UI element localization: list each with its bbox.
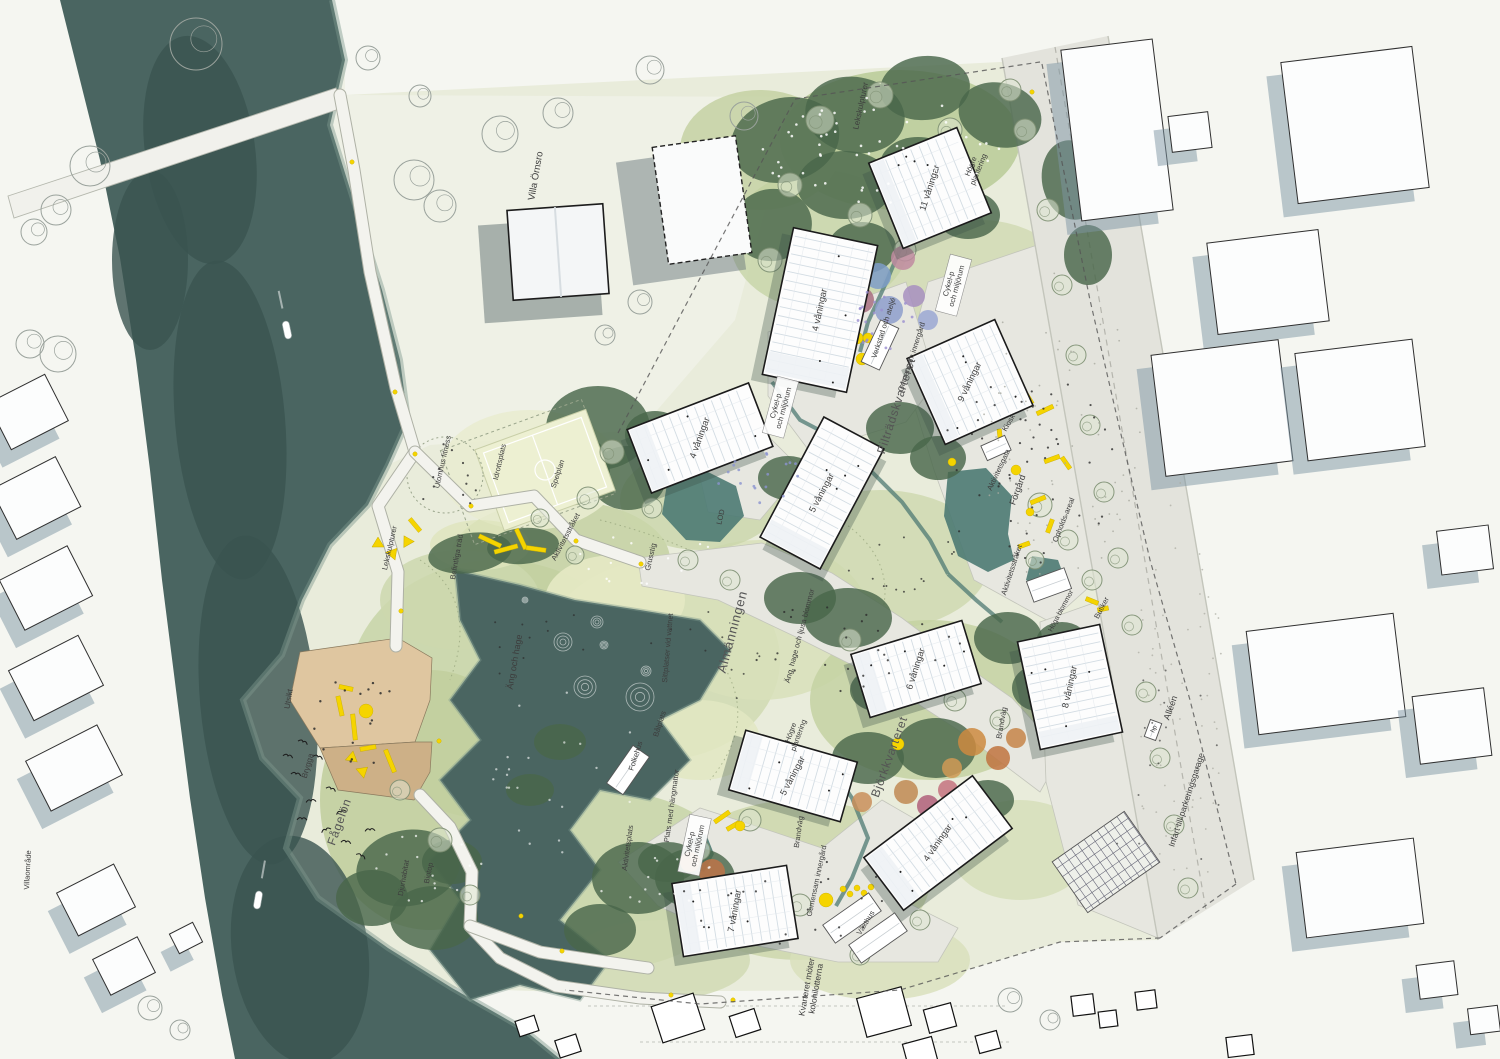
furniture-dot bbox=[669, 993, 673, 997]
speck bbox=[1025, 530, 1027, 532]
speck bbox=[1088, 461, 1090, 463]
speck bbox=[739, 482, 742, 485]
speck bbox=[995, 436, 997, 438]
speck bbox=[379, 692, 381, 694]
speck bbox=[843, 627, 845, 629]
speck bbox=[856, 154, 859, 157]
speck bbox=[945, 159, 948, 162]
speck bbox=[1059, 340, 1061, 342]
speck bbox=[1073, 351, 1075, 353]
building-roof bbox=[1151, 340, 1293, 477]
speck bbox=[945, 121, 948, 124]
speck bbox=[351, 758, 353, 760]
speck bbox=[1136, 408, 1138, 410]
speck bbox=[545, 621, 547, 623]
speck bbox=[521, 623, 523, 625]
context-building bbox=[1279, 339, 1427, 474]
speck bbox=[871, 332, 874, 335]
speck bbox=[451, 449, 453, 451]
speck bbox=[492, 778, 494, 780]
speck bbox=[1101, 516, 1103, 518]
speck bbox=[734, 460, 737, 463]
speck bbox=[1205, 828, 1207, 830]
furniture-dot bbox=[948, 458, 956, 466]
speck bbox=[875, 876, 877, 878]
speck bbox=[1089, 404, 1091, 406]
speck bbox=[857, 319, 860, 322]
speck bbox=[819, 154, 822, 157]
speck bbox=[605, 578, 607, 580]
speck bbox=[1160, 704, 1162, 706]
speck bbox=[468, 864, 470, 866]
allotment-cottage bbox=[1135, 990, 1157, 1010]
speck bbox=[826, 861, 828, 863]
speck bbox=[887, 182, 890, 185]
speck bbox=[953, 551, 955, 553]
speck bbox=[1077, 567, 1079, 569]
speck bbox=[703, 926, 705, 928]
speck bbox=[1212, 767, 1214, 769]
furniture-dot bbox=[413, 452, 417, 456]
speck bbox=[771, 172, 774, 175]
speck bbox=[762, 148, 765, 151]
flowering-tree bbox=[942, 758, 962, 778]
speck bbox=[785, 933, 787, 935]
speck bbox=[877, 649, 879, 651]
speck bbox=[676, 858, 678, 860]
speck bbox=[796, 475, 799, 478]
speck bbox=[1216, 744, 1218, 746]
speck bbox=[782, 495, 785, 498]
furniture-dot bbox=[840, 886, 846, 892]
speck bbox=[1031, 448, 1033, 450]
speck bbox=[1031, 390, 1033, 392]
speck bbox=[862, 341, 865, 344]
speck bbox=[764, 880, 766, 882]
speck bbox=[783, 611, 785, 613]
speck bbox=[415, 835, 417, 837]
speck bbox=[914, 170, 917, 173]
speck bbox=[998, 392, 1000, 394]
speck bbox=[1036, 514, 1038, 516]
speck bbox=[848, 570, 850, 572]
context-building bbox=[1265, 46, 1431, 217]
speck bbox=[1039, 424, 1041, 426]
speck bbox=[814, 929, 816, 931]
building-roof bbox=[1437, 525, 1494, 575]
speck bbox=[883, 654, 885, 656]
flowering-tree bbox=[894, 780, 918, 804]
speck bbox=[1040, 561, 1042, 563]
speck bbox=[558, 839, 560, 841]
speck bbox=[818, 143, 821, 146]
speck bbox=[1026, 571, 1028, 573]
speck bbox=[983, 413, 985, 415]
speck bbox=[1051, 480, 1053, 482]
speck bbox=[789, 461, 792, 464]
speck bbox=[1181, 682, 1183, 684]
speck bbox=[1118, 340, 1120, 342]
flowering-tree bbox=[958, 728, 986, 756]
speck bbox=[923, 580, 925, 582]
speck bbox=[1138, 843, 1140, 845]
speck bbox=[1008, 474, 1010, 476]
speck bbox=[516, 787, 518, 789]
speck bbox=[951, 553, 953, 555]
speck bbox=[506, 786, 508, 788]
furniture-dot bbox=[399, 609, 403, 613]
speck bbox=[1111, 448, 1113, 450]
speck bbox=[699, 889, 701, 891]
speck bbox=[1100, 324, 1102, 326]
speck bbox=[1207, 871, 1209, 873]
speck bbox=[1105, 496, 1107, 498]
speck bbox=[873, 312, 876, 315]
speck bbox=[658, 893, 660, 895]
furniture-dot bbox=[350, 160, 354, 164]
speck bbox=[1097, 498, 1099, 500]
speck bbox=[1141, 805, 1143, 807]
building-roof bbox=[1207, 230, 1329, 335]
speck bbox=[495, 768, 497, 770]
speck bbox=[1057, 443, 1059, 445]
speck bbox=[981, 437, 983, 439]
speck bbox=[948, 636, 950, 638]
speck bbox=[1121, 490, 1123, 492]
speck bbox=[1026, 461, 1028, 463]
furniture-dot bbox=[560, 949, 564, 953]
speck bbox=[1033, 539, 1035, 541]
speck bbox=[1052, 483, 1054, 485]
speck bbox=[989, 494, 991, 496]
speck bbox=[727, 471, 730, 474]
speck bbox=[985, 142, 988, 145]
speck bbox=[946, 429, 948, 431]
speck bbox=[1039, 385, 1041, 387]
speck bbox=[1010, 520, 1012, 522]
speck bbox=[522, 657, 524, 659]
speck bbox=[1094, 363, 1096, 365]
speck bbox=[1138, 794, 1140, 796]
speck bbox=[1218, 772, 1220, 774]
speck bbox=[1186, 867, 1188, 869]
speck bbox=[579, 743, 581, 745]
speck bbox=[824, 664, 826, 666]
speck bbox=[884, 347, 887, 350]
furniture-dot bbox=[639, 562, 643, 566]
speck bbox=[628, 801, 630, 803]
speck bbox=[881, 900, 883, 902]
speck bbox=[456, 889, 458, 891]
speck bbox=[707, 611, 709, 613]
speck bbox=[683, 890, 685, 892]
speck bbox=[1165, 835, 1167, 837]
speck bbox=[1179, 482, 1181, 484]
speck bbox=[776, 652, 778, 654]
speck bbox=[857, 200, 860, 203]
speck bbox=[965, 136, 968, 139]
speck bbox=[998, 147, 1001, 150]
furniture-dot bbox=[1026, 508, 1034, 516]
speck bbox=[375, 867, 377, 869]
speck bbox=[911, 316, 914, 319]
speck bbox=[421, 900, 423, 902]
speck bbox=[1025, 400, 1027, 402]
speck bbox=[866, 339, 869, 342]
speck bbox=[369, 722, 371, 724]
speck bbox=[935, 168, 938, 171]
speck bbox=[1078, 514, 1080, 516]
speck bbox=[1081, 414, 1083, 416]
building-roof bbox=[1168, 112, 1212, 153]
speck bbox=[878, 140, 881, 143]
building-roof bbox=[1296, 838, 1424, 938]
speck bbox=[367, 688, 369, 690]
furniture-dot bbox=[854, 885, 860, 891]
speck bbox=[1164, 785, 1166, 787]
speck bbox=[958, 530, 960, 532]
speck bbox=[465, 483, 467, 485]
speck bbox=[1052, 498, 1054, 500]
speck bbox=[997, 485, 999, 487]
speck bbox=[1019, 442, 1021, 444]
speck bbox=[977, 419, 979, 421]
speck bbox=[408, 899, 410, 901]
speck bbox=[1116, 513, 1118, 515]
speck bbox=[1155, 569, 1157, 571]
speck bbox=[344, 689, 346, 691]
speck bbox=[547, 630, 549, 632]
speck bbox=[802, 172, 805, 175]
speck bbox=[561, 806, 563, 808]
speck bbox=[1151, 722, 1153, 724]
speck bbox=[876, 189, 879, 192]
speck bbox=[1056, 404, 1058, 406]
speck bbox=[764, 486, 767, 489]
furniture-dot bbox=[1030, 90, 1034, 94]
speck bbox=[1047, 446, 1049, 448]
speck bbox=[758, 655, 760, 657]
speck bbox=[1201, 725, 1203, 727]
speck bbox=[885, 585, 887, 587]
speck bbox=[1155, 672, 1157, 674]
speck bbox=[845, 636, 847, 638]
speck bbox=[1170, 505, 1172, 507]
speck bbox=[1158, 689, 1160, 691]
speck bbox=[774, 658, 776, 660]
speck bbox=[959, 642, 961, 644]
building-roof bbox=[1416, 961, 1458, 999]
speck bbox=[862, 685, 864, 687]
speck bbox=[997, 439, 999, 441]
speck bbox=[903, 591, 905, 593]
speck bbox=[754, 487, 757, 490]
speck bbox=[873, 301, 876, 304]
speck bbox=[862, 675, 864, 677]
speck bbox=[880, 309, 883, 312]
speck bbox=[1214, 721, 1216, 723]
speck bbox=[499, 672, 501, 674]
speck bbox=[794, 462, 797, 465]
speck bbox=[518, 705, 520, 707]
furniture-dot bbox=[819, 893, 833, 907]
speck bbox=[1070, 350, 1072, 352]
speck bbox=[630, 542, 632, 544]
speck bbox=[872, 578, 874, 580]
speck bbox=[1045, 332, 1047, 334]
speck bbox=[371, 719, 373, 721]
furniture-dot bbox=[574, 539, 578, 543]
speck bbox=[646, 583, 648, 585]
speck bbox=[755, 890, 757, 892]
speck bbox=[1163, 702, 1165, 704]
building-roof bbox=[1246, 613, 1406, 734]
speck bbox=[1220, 653, 1222, 655]
speck bbox=[385, 853, 387, 855]
speck bbox=[743, 673, 745, 675]
speck bbox=[859, 307, 862, 310]
speck bbox=[860, 145, 863, 148]
speck bbox=[1159, 740, 1161, 742]
speck bbox=[373, 762, 375, 764]
speck bbox=[1165, 669, 1167, 671]
speck bbox=[919, 157, 922, 160]
speck bbox=[1187, 629, 1189, 631]
speck bbox=[529, 637, 531, 639]
speck bbox=[1055, 438, 1057, 440]
speck bbox=[508, 768, 510, 770]
speck bbox=[506, 756, 508, 758]
speck bbox=[629, 731, 631, 733]
speck bbox=[644, 888, 646, 890]
speck bbox=[991, 421, 993, 423]
speck bbox=[1200, 695, 1202, 697]
speck bbox=[820, 135, 823, 138]
speck bbox=[561, 851, 563, 853]
speck bbox=[1009, 477, 1011, 479]
speck bbox=[791, 135, 794, 138]
speck bbox=[1154, 628, 1156, 630]
speck bbox=[1192, 799, 1194, 801]
building-roof bbox=[1468, 1005, 1500, 1034]
speck bbox=[1019, 418, 1021, 420]
speck bbox=[629, 896, 631, 898]
speck bbox=[1101, 557, 1103, 559]
speck bbox=[1144, 727, 1146, 729]
speck bbox=[1029, 429, 1031, 431]
speck bbox=[689, 628, 691, 630]
speck bbox=[701, 884, 703, 886]
speck bbox=[1149, 668, 1151, 670]
furniture-dot bbox=[735, 821, 745, 831]
speck bbox=[434, 887, 436, 889]
speck bbox=[978, 494, 980, 496]
speck bbox=[1119, 519, 1121, 521]
speck bbox=[903, 536, 905, 538]
speck bbox=[527, 757, 529, 759]
speck bbox=[1098, 434, 1100, 436]
speck bbox=[433, 882, 435, 884]
speck bbox=[359, 693, 361, 695]
speck bbox=[1042, 408, 1044, 410]
speck bbox=[962, 162, 965, 165]
speck bbox=[834, 130, 837, 133]
speck bbox=[878, 544, 880, 546]
speck bbox=[861, 620, 863, 622]
speck bbox=[518, 829, 520, 831]
speck bbox=[1029, 522, 1031, 524]
speck bbox=[895, 589, 897, 591]
speck bbox=[1005, 353, 1007, 355]
speck bbox=[372, 682, 374, 684]
speck bbox=[1104, 541, 1106, 543]
speck bbox=[1215, 613, 1217, 615]
speck bbox=[1057, 349, 1059, 351]
speck bbox=[1009, 480, 1011, 482]
speck bbox=[906, 121, 909, 124]
speck bbox=[1160, 764, 1162, 766]
speck bbox=[731, 669, 733, 671]
speck bbox=[600, 890, 602, 892]
furniture-dot bbox=[847, 891, 853, 897]
speck bbox=[1187, 897, 1189, 899]
speck bbox=[1028, 488, 1030, 490]
speck bbox=[997, 492, 999, 494]
allotment-cottage bbox=[1098, 1010, 1118, 1028]
speck bbox=[566, 692, 568, 694]
speck bbox=[921, 623, 923, 625]
speck bbox=[915, 179, 918, 182]
speck bbox=[1067, 383, 1069, 385]
speck bbox=[1140, 609, 1142, 611]
speck bbox=[1134, 467, 1136, 469]
speck bbox=[780, 166, 783, 169]
speck bbox=[742, 891, 744, 893]
speck bbox=[708, 867, 710, 869]
speck bbox=[790, 616, 792, 618]
speck bbox=[833, 112, 836, 115]
speck bbox=[865, 614, 867, 616]
speck bbox=[736, 697, 738, 699]
speck bbox=[732, 464, 735, 467]
speck bbox=[1050, 429, 1052, 431]
speck bbox=[1128, 500, 1130, 502]
speck bbox=[1173, 869, 1175, 871]
speck bbox=[1044, 457, 1046, 459]
tree-mass bbox=[564, 904, 636, 956]
speck bbox=[779, 943, 781, 945]
speck bbox=[506, 774, 508, 776]
speck bbox=[1053, 272, 1055, 274]
speck bbox=[821, 109, 824, 112]
speck bbox=[1151, 654, 1153, 656]
speck bbox=[1208, 673, 1210, 675]
speck bbox=[475, 489, 477, 491]
context-building bbox=[1135, 340, 1294, 491]
speck bbox=[1008, 545, 1010, 547]
speck bbox=[334, 681, 336, 683]
speck bbox=[638, 900, 640, 902]
speck bbox=[1017, 522, 1019, 524]
speck bbox=[1032, 436, 1034, 438]
speck bbox=[1159, 853, 1161, 855]
speck bbox=[1039, 573, 1041, 575]
site-plan-svg: 11 våningar4 våningar9 våningar4 våninga… bbox=[0, 0, 1500, 1059]
speck bbox=[904, 302, 907, 305]
speck bbox=[756, 659, 758, 661]
speck bbox=[1064, 462, 1066, 464]
speck bbox=[704, 650, 706, 652]
